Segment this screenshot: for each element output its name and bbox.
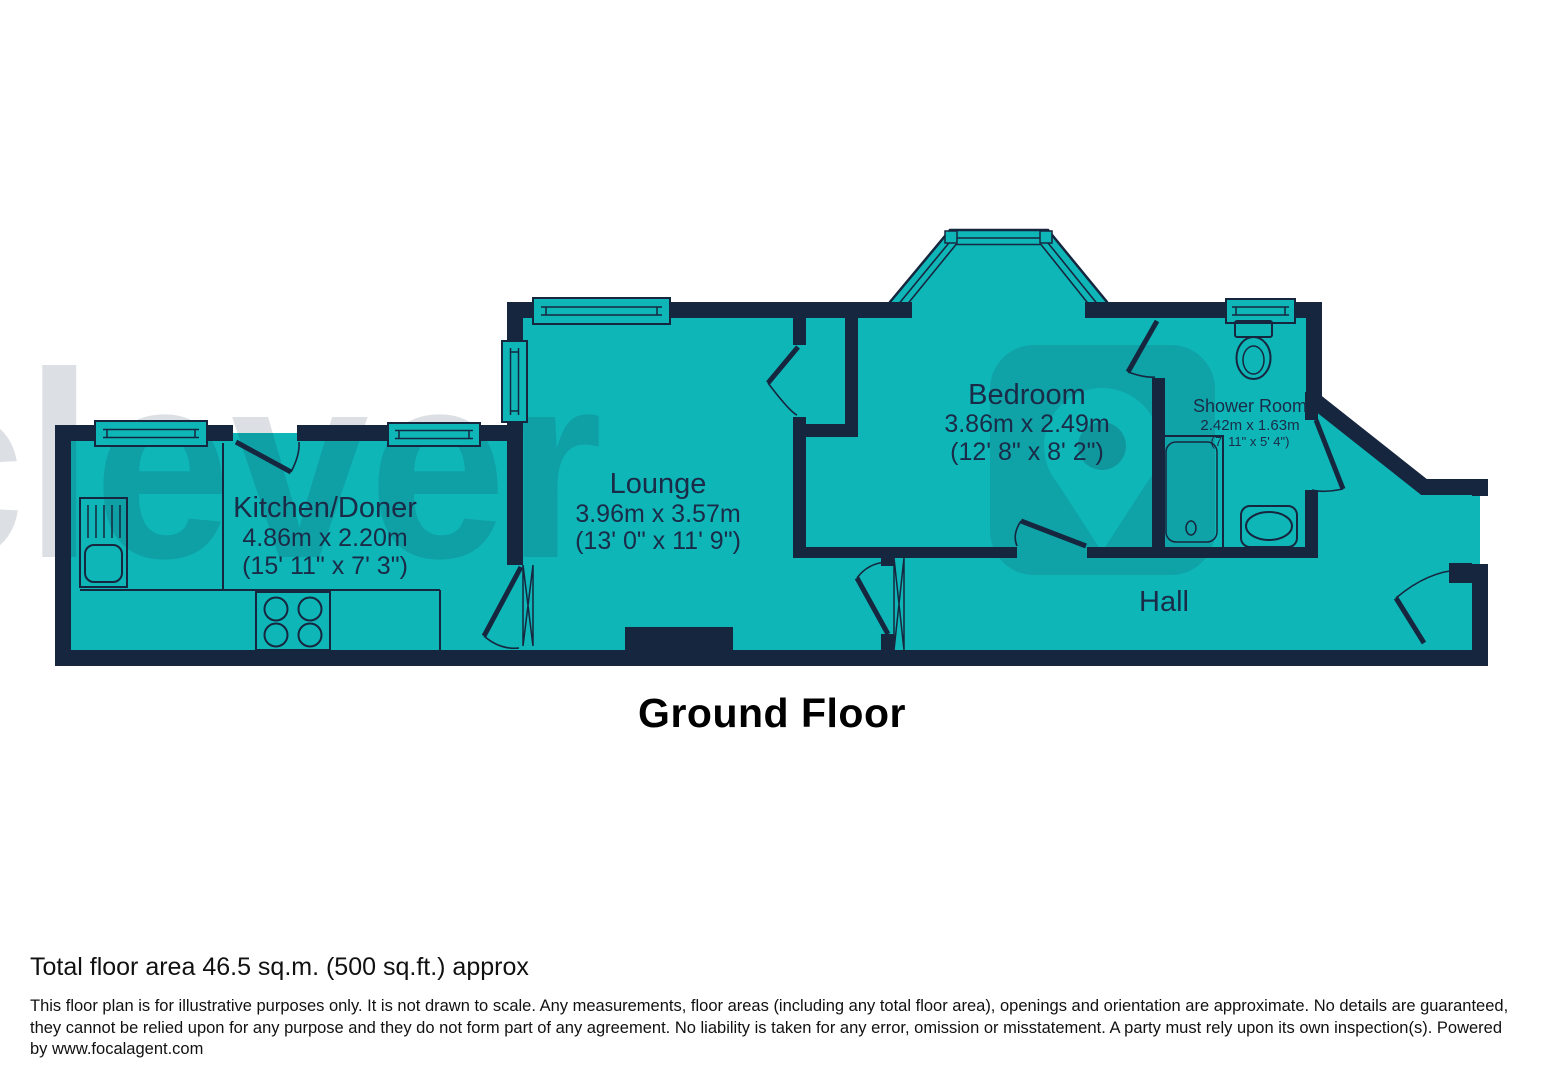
lounge-top-window-icon [533,298,670,324]
bedroom-bottom-wall [793,547,1017,558]
bedroom-label: Bedroom [968,379,1086,411]
kitchen-label: Kitchen/Doner [233,492,417,524]
disclaimer-text: This floor plan is for illustrative purp… [30,996,1522,1061]
kitchen-metric: 4.86m x 2.20m [242,524,407,552]
bedroom-metric: 3.86m x 2.49m [944,410,1109,438]
kitchen-window-right-icon [388,423,480,446]
page-title: Ground Floor [0,690,1544,737]
shower-imperial: (7' 11" x 5' 4") [1211,434,1290,449]
kitchen-window-left-icon [95,421,207,446]
shower-metric: 2.42m x 1.63m [1200,417,1299,434]
lounge-metric: 3.96m x 3.57m [575,500,740,528]
floorplan-drawing: clever [0,0,1544,1080]
floorplan-page: clever [0,0,1544,1080]
room-kitchen: Kitchen/Doner 4.86m x 2.20m (15' 11" x 7… [233,492,417,580]
chimney-breast [625,627,733,653]
room-bedroom: Bedroom 3.86m x 2.49m (12' 8" x 8' 2") [944,379,1109,466]
entrance-notch [1449,563,1472,583]
lounge-left-window-icon [502,341,527,422]
hall-label: Hall [1139,586,1189,618]
bedroom-shower-wall [1152,378,1165,558]
kitchen-lounge-wall [507,433,523,565]
kitchen-imperial: (15' 11" x 7' 3") [242,552,408,580]
lounge-imperial: (13' 0" x 11' 9") [575,527,741,555]
bedroom-imperial: (12' 8" x 8' 2") [950,438,1104,466]
shower-window-icon [1226,299,1295,323]
lounge-label: Lounge [610,468,707,500]
total-floor-area: Total floor area 46.5 sq.m. (500 sq.ft.)… [30,953,529,982]
shower-label: Shower Room [1193,396,1307,416]
